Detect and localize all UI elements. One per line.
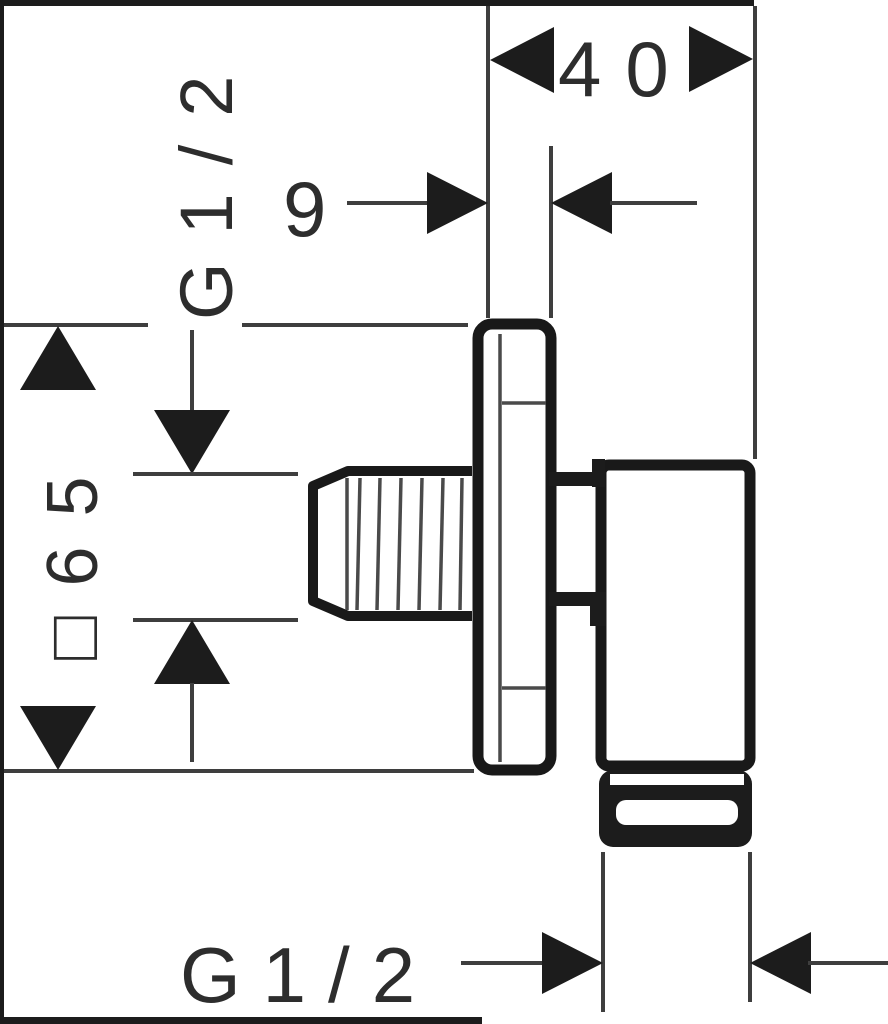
arrow-down-icon bbox=[154, 410, 230, 474]
dimension-drawing: □65 G1/2 40 9 bbox=[0, 0, 888, 1024]
body-outline bbox=[601, 465, 750, 766]
fixture-body bbox=[549, 459, 750, 766]
frame-top-line bbox=[0, 0, 754, 6]
body-upper-step bbox=[592, 459, 605, 487]
nozzle-neck-slit bbox=[610, 774, 744, 785]
dimension-40: 40 bbox=[490, 25, 753, 113]
arrow-right-icon bbox=[689, 26, 753, 92]
frame-left-line bbox=[0, 0, 4, 1024]
nozzle-groove bbox=[616, 800, 738, 825]
arrow-up-icon bbox=[20, 326, 96, 390]
fixture-inlet-nipple bbox=[313, 471, 472, 616]
arrow-down-icon bbox=[20, 706, 96, 770]
arrow-right-icon bbox=[427, 172, 488, 234]
dim-label-square-65: □65 bbox=[33, 446, 113, 660]
wall-plate-outline bbox=[478, 324, 551, 770]
arrow-up-icon bbox=[154, 620, 230, 684]
dim-label-outlet-thread: G1/2 bbox=[180, 931, 437, 1019]
dim-label-40: 40 bbox=[558, 25, 693, 113]
nipple-outline bbox=[313, 471, 472, 616]
dim-label-9: 9 bbox=[283, 165, 326, 253]
dimension-outlet-thread: G1/2 bbox=[180, 931, 888, 1019]
arrow-left-icon bbox=[490, 27, 554, 93]
dimension-inlet-thread: G1/2 bbox=[133, 48, 298, 762]
fixture-outlet-nozzle bbox=[599, 770, 752, 847]
body-lower-step bbox=[590, 592, 606, 626]
technical-drawing-canvas: □65 G1/2 40 9 bbox=[0, 0, 888, 1024]
arrow-right-icon bbox=[542, 932, 603, 994]
arrow-left-icon bbox=[551, 172, 612, 234]
thread-line bbox=[460, 478, 462, 610]
arrow-left-icon bbox=[750, 932, 811, 994]
dim-label-inlet-thread: G1/2 bbox=[165, 48, 248, 320]
fixture-wall-plate bbox=[478, 324, 551, 770]
